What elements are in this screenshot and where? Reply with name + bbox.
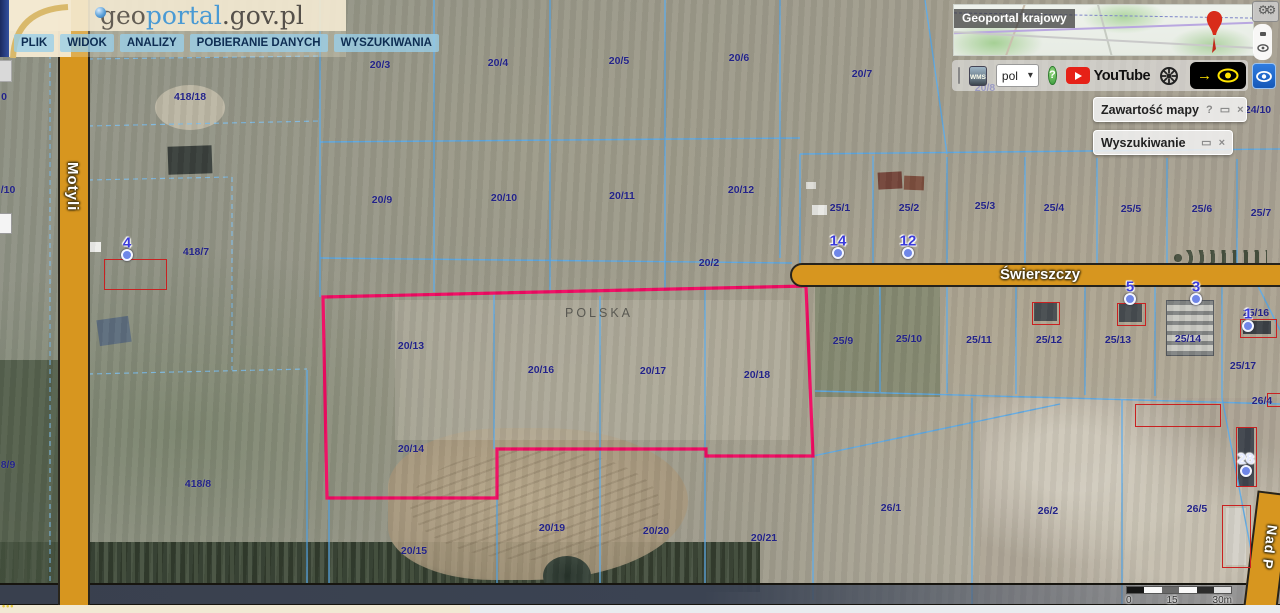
map-content-panel[interactable]: Zawartość mapy ? ▭ × <box>1093 97 1247 122</box>
language-select[interactable]: pol ▾ <box>996 64 1039 87</box>
parcel-label: 418/8 <box>185 478 211 490</box>
menu-item-wyszukiwania[interactable]: WYSZUKIWANIA <box>334 34 439 52</box>
parcel-label: 25/14 <box>1175 333 1201 345</box>
parcel-label: 418/18 <box>174 91 206 103</box>
parcel-label: 20/21 <box>751 532 777 544</box>
parcel-label: 24/10 <box>1245 104 1271 116</box>
wms-icon[interactable]: WMS <box>969 66 987 86</box>
youtube-label: YouTube <box>1094 68 1150 84</box>
address-point-icon <box>121 249 133 261</box>
parcel-label: 20/11 <box>609 190 635 202</box>
parcel-label: 20/12 <box>728 184 754 196</box>
view-options-strip[interactable] <box>1253 24 1272 60</box>
building-white <box>806 182 816 189</box>
building-outline <box>104 259 167 290</box>
menu-item-pobieranie-danych[interactable]: POBIERANIE DANYCH <box>190 34 328 52</box>
building-outline <box>1222 505 1251 568</box>
site-logo[interactable]: geoportal.gov.pl <box>100 1 304 30</box>
help-button[interactable]: ? <box>1048 66 1057 85</box>
panel-maximize-button[interactable]: ▭ <box>1220 103 1230 116</box>
parcel-label: 26/4 <box>1252 395 1272 407</box>
panel-title: Wyszukiwanie <box>1101 136 1194 150</box>
overview-minimap[interactable]: Geoportal krajowy <box>953 4 1254 56</box>
building-roof <box>904 176 924 191</box>
parcel-label: 20/15 <box>401 545 427 557</box>
top-toolbar: WMS pol ▾ ? YouTube → <box>952 60 1248 91</box>
parcel-label: 25/3 <box>975 200 995 212</box>
menu-item-widok[interactable]: WIDOK <box>60 34 114 52</box>
country-label: POLSKA <box>565 306 633 320</box>
parcel-label: 20/2 <box>699 257 719 269</box>
panel-close-icon[interactable]: × <box>1237 104 1243 116</box>
street-label-swierszczy: Świerszczy <box>1000 266 1080 283</box>
road-motyli <box>58 0 90 613</box>
building-outline <box>1135 404 1221 427</box>
map-texture-sand-streaks <box>410 450 660 560</box>
panel-help-button[interactable]: ? <box>1206 104 1213 116</box>
visibility-button[interactable] <box>1252 63 1276 89</box>
building-white <box>812 205 827 215</box>
address-point-icon <box>1124 293 1136 305</box>
map-texture-sandpit <box>388 428 688 580</box>
parcel-label: 25/17 <box>1230 360 1256 372</box>
parcel-label: 20/4 <box>488 57 508 69</box>
address-point-icon <box>832 247 844 259</box>
building-roof-blue <box>96 316 131 346</box>
parcel-label: 20/7 <box>852 68 872 80</box>
youtube-play-icon <box>1066 67 1090 84</box>
address-point-icon <box>1242 320 1254 332</box>
menu-item-plik[interactable]: PLIK <box>14 34 54 52</box>
parcel-label: 20/13 <box>398 340 424 352</box>
page-bottom-strip-light <box>470 605 1280 613</box>
parcel-label: 20/20 <box>643 525 669 537</box>
scale-bar-segments <box>1126 586 1232 594</box>
left-nav-strip <box>0 0 9 57</box>
arrow-icon: → <box>1197 67 1212 84</box>
map-viewport[interactable]: Motyli Świerszczy Nad P 0/108/9418/18418… <box>0 0 1280 613</box>
address-point-icon <box>1240 465 1252 477</box>
map-texture-field-light <box>395 300 790 440</box>
panel-close-icon[interactable]: × <box>1219 137 1225 149</box>
parcel-label: 418/7 <box>183 246 209 258</box>
parcel-label: 25/9 <box>833 335 853 347</box>
parcel-label: 20/18 <box>744 369 770 381</box>
building-shed <box>168 145 213 175</box>
menu-item-analizy[interactable]: ANALIZY <box>120 34 184 52</box>
parcel-label: 20/10 <box>491 192 517 204</box>
language-value: pol <box>1002 69 1018 83</box>
youtube-button[interactable]: YouTube <box>1066 67 1150 84</box>
map-texture-dirt-right <box>980 398 1280 608</box>
small-eye-icon[interactable] <box>1257 44 1269 52</box>
logo-orb-icon <box>95 7 106 18</box>
edge-widget-mid[interactable] <box>0 213 12 234</box>
parcel-label: 20/3 <box>370 59 390 71</box>
geoportal-app: Motyli Świerszczy Nad P 0/108/9418/18418… <box>0 0 1280 613</box>
parcel-label: 20/17 <box>640 365 666 377</box>
road-bottom <box>0 583 1280 606</box>
parcel-label: 25/13 <box>1105 334 1131 346</box>
parcel-label: 26/1 <box>881 502 901 514</box>
corner-dots: ••• <box>2 601 14 611</box>
chevron-down-icon: ▾ <box>1028 70 1033 81</box>
address-point-icon <box>902 247 914 259</box>
parcel-label: 26/5 <box>1187 503 1207 515</box>
parcel-label: 25/2 <box>899 202 919 214</box>
building-roof <box>878 171 903 189</box>
parcel-label: 25/1 <box>830 202 850 214</box>
eye-icon <box>1217 68 1239 83</box>
panel-maximize-button[interactable]: ▭ <box>1201 136 1211 149</box>
parcel-label: 25/6 <box>1192 203 1212 215</box>
parcel-label: 25/4 <box>1044 202 1064 214</box>
street-label-motyli: Motyli <box>64 162 81 211</box>
parcel-label: 25/11 <box>966 334 992 346</box>
parcel-label: 25/10 <box>896 333 922 345</box>
parcel-label: 8/9 <box>1 459 16 471</box>
minimap-location-marker <box>1202 9 1232 55</box>
building-large <box>1166 300 1214 356</box>
parcel-label: 20/9 <box>372 194 392 206</box>
parcel-label: 26/2 <box>1038 505 1058 517</box>
settings-gears-button[interactable]: ⚙⚙ <box>1252 1 1279 22</box>
parcel-label: 25/7 <box>1251 207 1271 219</box>
small-view-icon[interactable] <box>1260 32 1266 36</box>
panel-title: Zawartość mapy <box>1101 103 1199 117</box>
map-texture-forest-left <box>0 360 58 613</box>
parcel-label: 20/5 <box>609 55 629 67</box>
parcel-label: /10 <box>1 184 16 196</box>
address-point-icon <box>1190 293 1202 305</box>
main-menu: PLIKWIDOKANALIZYPOBIERANIE DANYCHWYSZUKI… <box>14 34 439 52</box>
search-panel[interactable]: Wyszukiwanie ▭ × <box>1093 130 1233 155</box>
building-white <box>1155 446 1169 457</box>
legend-icon[interactable] <box>958 67 960 84</box>
scale-bar: 0 15 30m <box>1126 586 1232 606</box>
building-outline <box>1117 303 1146 326</box>
eye-toolbox[interactable]: → <box>1190 62 1246 89</box>
parcel-label: 20/14 <box>398 443 424 455</box>
eye-icon <box>1256 71 1272 82</box>
building-outline <box>1032 302 1060 325</box>
edge-widget-top[interactable] <box>0 60 12 82</box>
parcel-label: 20/19 <box>539 522 565 534</box>
parcel-label: 20/16 <box>528 364 554 376</box>
minimap-title: Geoportal krajowy <box>954 9 1075 28</box>
wheel-icon[interactable] <box>1159 66 1179 86</box>
parcel-label: 25/5 <box>1121 203 1141 215</box>
parcel-label: 0 <box>1 91 7 103</box>
parcel-label: 20/6 <box>729 52 749 64</box>
parcel-label: 25/12 <box>1036 334 1062 346</box>
